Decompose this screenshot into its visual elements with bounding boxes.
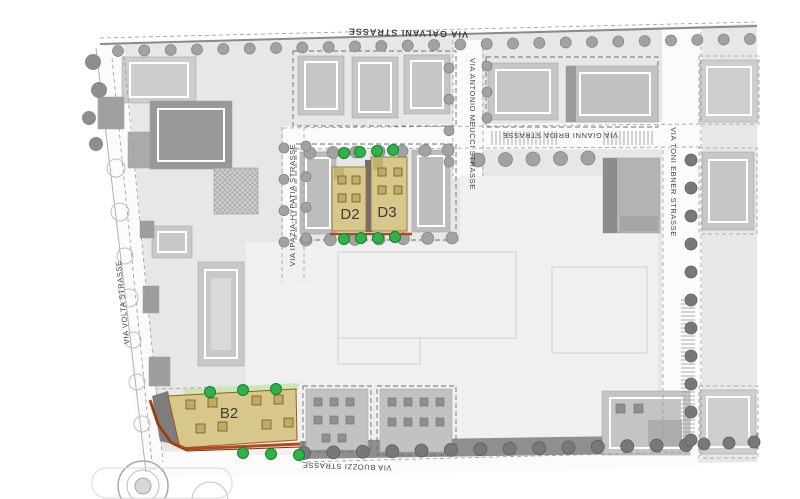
tree-dot bbox=[685, 378, 697, 390]
tree-dot bbox=[327, 147, 339, 159]
block-top-right bbox=[486, 57, 658, 127]
plot-b2-label: B2 bbox=[220, 405, 238, 422]
site-plan-svg: D2 D3 B2 bbox=[0, 0, 800, 499]
tree-dot bbox=[685, 154, 697, 166]
tree-dot bbox=[419, 145, 431, 157]
tree-dot bbox=[218, 44, 229, 55]
tree-dot bbox=[562, 441, 575, 454]
tree-dot bbox=[554, 152, 568, 166]
tree-dot bbox=[301, 172, 311, 182]
tree-dot bbox=[474, 443, 487, 456]
tree-dot bbox=[165, 45, 176, 56]
block-right-building bbox=[603, 158, 660, 233]
tree-dot bbox=[244, 43, 255, 54]
street-label-meucci: VIA ANTONIO MEUCCI STRASSE bbox=[468, 58, 477, 190]
tree-dot bbox=[301, 233, 311, 243]
tree-dot bbox=[482, 61, 492, 71]
tree-dot bbox=[685, 350, 697, 362]
tree-dot bbox=[301, 141, 311, 151]
tree-dot bbox=[444, 157, 454, 167]
tree-dot bbox=[444, 126, 454, 136]
tree-dot bbox=[402, 40, 413, 51]
block-bottom-right bbox=[602, 391, 690, 455]
tree-dot bbox=[482, 87, 492, 97]
tree-dot bbox=[386, 445, 399, 458]
plot-d2[interactable]: D2 bbox=[332, 167, 366, 231]
tree-dot bbox=[481, 39, 492, 50]
tree-dot bbox=[455, 39, 466, 50]
tree-dot bbox=[621, 440, 634, 453]
tree-dot bbox=[139, 45, 150, 56]
tree-dot bbox=[581, 151, 595, 165]
tree-dot bbox=[499, 153, 513, 167]
tree-dot bbox=[745, 34, 756, 45]
plot-d3[interactable]: D3 bbox=[371, 157, 407, 231]
tree-dot bbox=[685, 406, 697, 418]
courtyard-hatch bbox=[214, 168, 258, 214]
tree-dot bbox=[685, 266, 697, 278]
tree-dot bbox=[356, 445, 369, 458]
tree-dot bbox=[685, 182, 697, 194]
street-label-ipazia: VIA IPAZIA-HYPATIA STRASSE bbox=[288, 144, 297, 267]
tree-dot bbox=[692, 35, 703, 46]
tree-dot bbox=[271, 43, 282, 54]
tree-dot bbox=[444, 63, 454, 73]
tree-dot bbox=[442, 144, 454, 156]
tree-dot bbox=[718, 34, 729, 45]
tree-dot bbox=[685, 210, 697, 222]
tree-dot bbox=[446, 232, 458, 244]
tree-dot bbox=[650, 439, 663, 452]
tree-dot bbox=[327, 446, 340, 459]
tree-dot bbox=[613, 36, 624, 47]
tree-dot bbox=[508, 38, 519, 49]
site-plan: D2 D3 B2 bbox=[0, 0, 800, 499]
tree-dot bbox=[748, 436, 760, 448]
tree-dot bbox=[422, 232, 434, 244]
tree-dot bbox=[666, 35, 677, 46]
tree-dot bbox=[297, 42, 308, 53]
street-label-ebner: VIA TONI EBNER STRASSE bbox=[669, 127, 678, 237]
plot-d2-label: D2 bbox=[340, 206, 359, 223]
tree-dot bbox=[534, 38, 545, 49]
tree-dot bbox=[323, 42, 334, 53]
street-label-galvani: VIA GALVANI STRASSE bbox=[348, 26, 469, 39]
tree-dot bbox=[376, 41, 387, 52]
tree-dot bbox=[429, 40, 440, 51]
tree-dot bbox=[685, 238, 697, 250]
tree-dot bbox=[482, 113, 492, 123]
tree-dot bbox=[301, 202, 311, 212]
tree-dot bbox=[350, 41, 361, 52]
tree-dot bbox=[591, 440, 604, 453]
tree-dot bbox=[415, 444, 428, 457]
tree-dot bbox=[192, 44, 203, 55]
tree-dot bbox=[533, 442, 546, 455]
tree-dot bbox=[324, 234, 336, 246]
tree-dot bbox=[698, 438, 710, 450]
tree-dot bbox=[685, 434, 697, 446]
tree-dot bbox=[723, 437, 735, 449]
tree-dot bbox=[560, 37, 571, 48]
tree-dot bbox=[526, 152, 540, 166]
tree-dot bbox=[639, 36, 650, 47]
tree-dot bbox=[587, 37, 598, 48]
tree-dot bbox=[113, 46, 124, 57]
tree-dot bbox=[685, 322, 697, 334]
plot-d3-label: D3 bbox=[377, 204, 396, 221]
street-label-brida: VIA GIANNI BRIDA STRASSE bbox=[502, 131, 618, 140]
tree-dot bbox=[444, 443, 457, 456]
tree-dot bbox=[503, 442, 516, 455]
tree-dot bbox=[444, 94, 454, 104]
tree-dot bbox=[685, 294, 697, 306]
